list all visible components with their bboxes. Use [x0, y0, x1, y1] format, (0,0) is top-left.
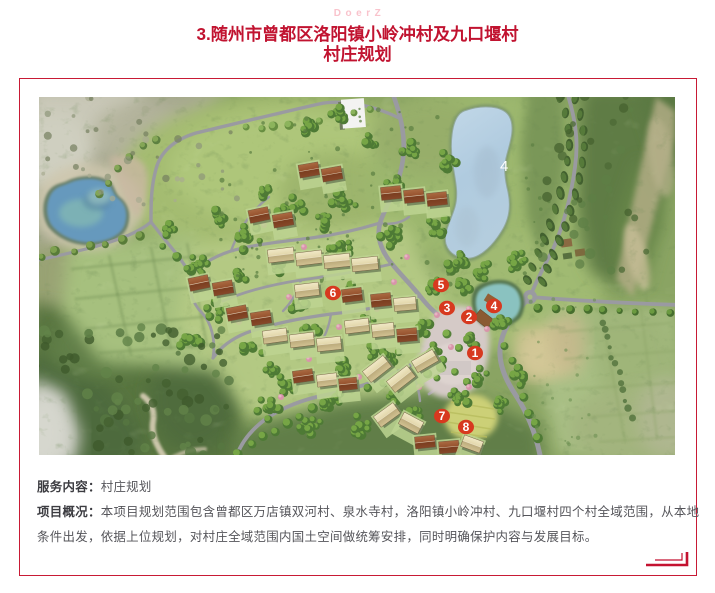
svg-text:5: 5	[438, 278, 445, 292]
svg-text:3: 3	[444, 301, 451, 315]
svg-text:6: 6	[330, 286, 337, 300]
svg-text:4: 4	[491, 299, 498, 313]
svg-text:7: 7	[439, 409, 446, 423]
svg-text:1: 1	[472, 346, 479, 360]
svg-text:4: 4	[500, 158, 508, 175]
svg-text:2: 2	[466, 310, 473, 324]
svg-text:8: 8	[463, 420, 470, 434]
